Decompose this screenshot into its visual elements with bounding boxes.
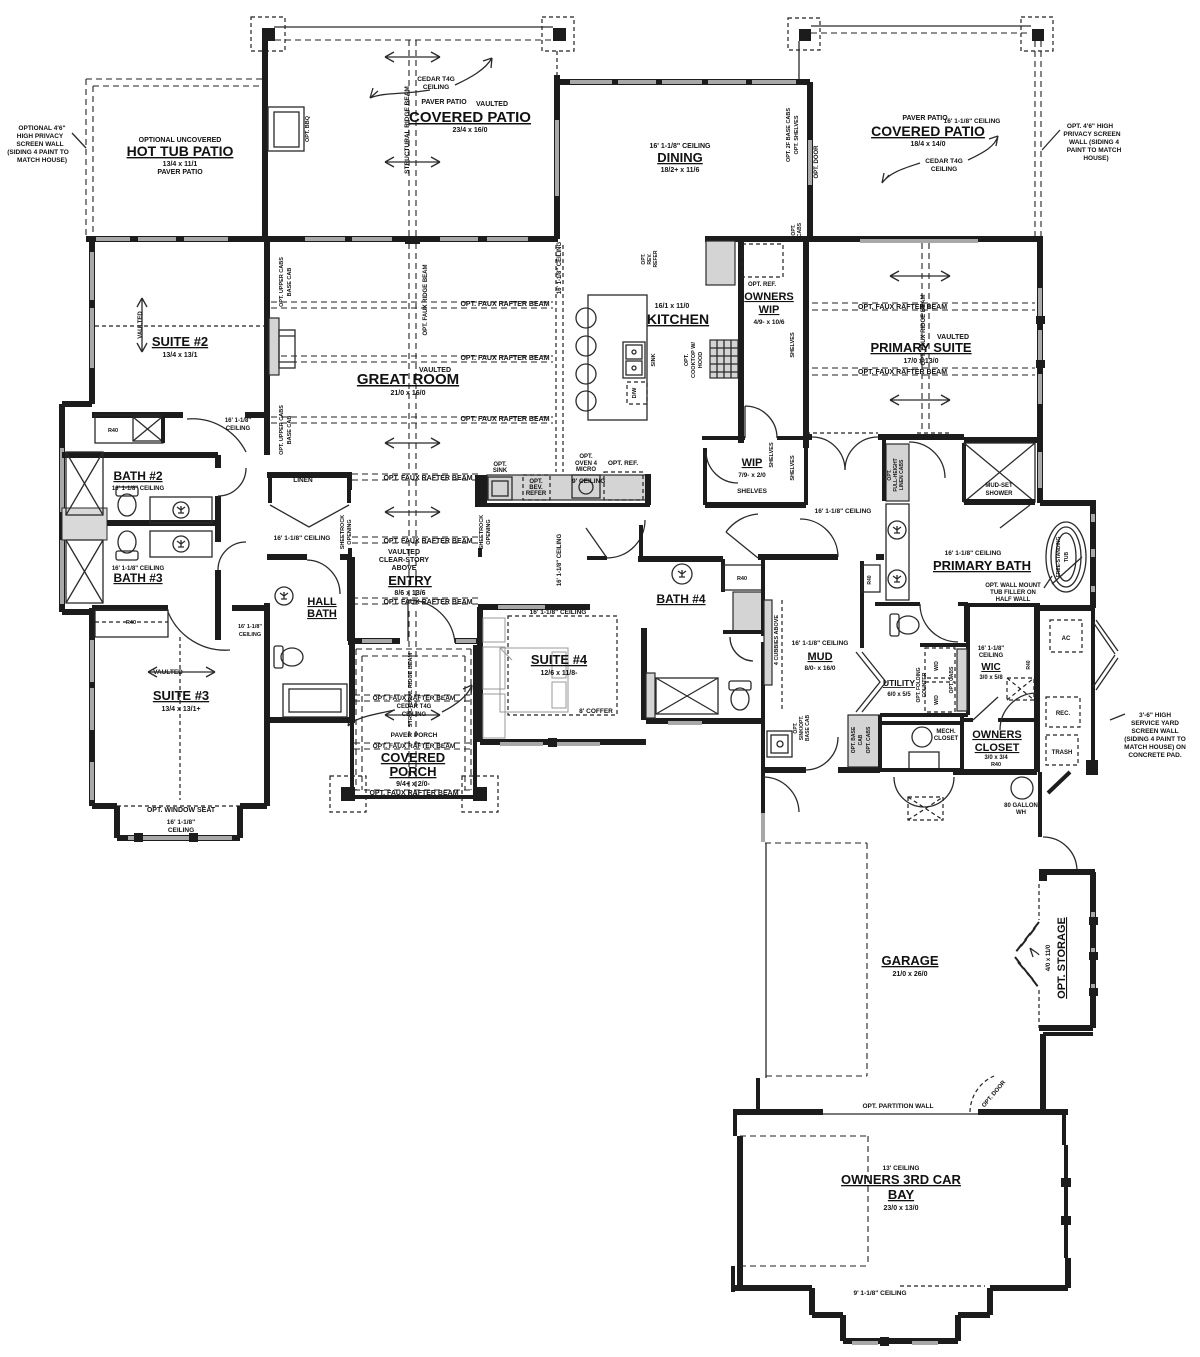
svg-text:16' 1-1/8" CEILING: 16' 1-1/8" CEILING — [792, 640, 849, 647]
svg-text:4/9- x 10/6: 4/9- x 10/6 — [753, 319, 784, 326]
svg-text:OPT. FAUX RAFTER BEAM: OPT. FAUX RAFTER BEAM — [373, 695, 456, 702]
svg-text:18/4 x 14/0: 18/4 x 14/0 — [910, 141, 945, 148]
svg-text:SERVICE YARD: SERVICE YARD — [1131, 720, 1179, 727]
svg-text:16' 1-1/8" CEILING: 16' 1-1/8" CEILING — [530, 609, 587, 616]
svg-text:16' 1-1/8" CEILING: 16' 1-1/8" CEILING — [557, 534, 563, 587]
svg-text:16' 1-1/8" CEILING: 16' 1-1/8" CEILING — [112, 486, 165, 492]
svg-text:13' CEILING: 13' CEILING — [883, 1165, 920, 1172]
svg-text:SINK: SINK — [651, 353, 657, 366]
svg-text:16' 1-1/8": 16' 1-1/8" — [238, 624, 262, 630]
svg-text:FREE-STANDING: FREE-STANDING — [1056, 537, 1062, 578]
svg-text:OPT.: OPT. — [579, 454, 593, 460]
svg-text:16' 1-1/8": 16' 1-1/8" — [225, 418, 251, 424]
svg-text:R40: R40 — [991, 762, 1001, 768]
svg-text:VAULTED: VAULTED — [138, 311, 144, 339]
svg-text:16' 1-1/8" CEILING: 16' 1-1/8" CEILING — [945, 550, 1002, 557]
svg-text:21/0 x 16/0: 21/0 x 16/0 — [390, 390, 425, 397]
svg-text:W/D: W/D — [934, 695, 940, 705]
svg-text:DINING: DINING — [657, 150, 703, 165]
svg-text:21/0 x 26/0: 21/0 x 26/0 — [892, 971, 927, 978]
svg-text:17/0 x 13/0: 17/0 x 13/0 — [903, 358, 938, 365]
svg-text:4 CUBBIES ABOVE: 4 CUBBIES ABOVE — [774, 615, 780, 666]
svg-text:PRIMARY SUITE: PRIMARY SUITE — [870, 340, 971, 355]
svg-text:3/0 x 3/4: 3/0 x 3/4 — [984, 755, 1008, 761]
svg-text:BATH #2: BATH #2 — [113, 469, 162, 483]
svg-text:REC.: REC. — [1056, 711, 1071, 717]
svg-text:3'-6" HIGH: 3'-6" HIGH — [1139, 712, 1171, 719]
svg-text:OPT. DOOR: OPT. DOOR — [814, 145, 820, 179]
svg-text:OPT. FAUX RAFTER BEAM: OPT. FAUX RAFTER BEAM — [858, 369, 947, 376]
svg-text:STRUCTURAL RIDGE BEAM: STRUCTURAL RIDGE BEAM — [404, 86, 411, 174]
svg-text:MATCH HOUSE) ON: MATCH HOUSE) ON — [1124, 744, 1186, 751]
svg-text:OPT. FAUX RAFTER BEAM: OPT. FAUX RAFTER BEAM — [460, 301, 549, 308]
svg-text:HALF WALL: HALF WALL — [996, 597, 1031, 603]
svg-text:23/0 x 13/0: 23/0 x 13/0 — [883, 1205, 918, 1212]
svg-text:HIGH PRIVACY: HIGH PRIVACY — [17, 133, 64, 140]
svg-text:OPT. 2F BASE CABS: OPT. 2F BASE CABS — [786, 108, 792, 162]
svg-text:WIC: WIC — [981, 662, 1000, 673]
svg-text:PAVER PORCH: PAVER PORCH — [391, 732, 438, 739]
svg-text:VAULTED: VAULTED — [476, 101, 508, 108]
svg-text:OPT. 4'6" HIGH: OPT. 4'6" HIGH — [1067, 123, 1113, 130]
svg-text:TUB FILLER ON: TUB FILLER ON — [990, 590, 1036, 596]
svg-text:UTILITY: UTILITY — [883, 678, 915, 688]
svg-text:13/4 x 13/1: 13/4 x 13/1 — [162, 352, 197, 359]
svg-text:16' 1-1/8": 16' 1-1/8" — [167, 819, 195, 826]
svg-text:OPT. BASE: OPT. BASE — [851, 726, 857, 753]
svg-text:MUD-SET: MUD-SET — [985, 483, 1013, 489]
svg-text:WIP: WIP — [742, 457, 763, 469]
svg-text:SHELVES: SHELVES — [737, 488, 768, 495]
svg-text:3/0 x 5/8: 3/0 x 5/8 — [979, 675, 1003, 681]
svg-text:OPT. FAUX RAFTER BEAM: OPT. FAUX RAFTER BEAM — [383, 475, 472, 482]
svg-text:OPT. UPPER CABS: OPT. UPPER CABS — [279, 405, 285, 455]
svg-text:MUD: MUD — [807, 651, 832, 663]
svg-text:D/W: D/W — [632, 387, 638, 399]
svg-text:CEILING: CEILING — [168, 827, 194, 834]
svg-text:16' 1-1/8" CEILING: 16' 1-1/8" CEILING — [815, 508, 872, 515]
svg-text:HOOD: HOOD — [698, 352, 704, 369]
svg-text:KITCHEN: KITCHEN — [647, 311, 709, 327]
svg-text:OPT. BBQ: OPT. BBQ — [305, 115, 311, 142]
svg-text:80 GALLON: 80 GALLON — [1004, 803, 1038, 809]
svg-text:R40: R40 — [737, 576, 747, 582]
svg-text:BAY: BAY — [888, 1187, 915, 1202]
svg-text:8/6 x 13/6: 8/6 x 13/6 — [394, 590, 425, 597]
svg-text:W/D: W/D — [934, 661, 940, 671]
svg-text:BASE CAB: BASE CAB — [287, 416, 293, 445]
svg-text:23/4 x 16/0: 23/4 x 16/0 — [452, 127, 487, 134]
svg-text:16' 1-1/8": 16' 1-1/8" — [978, 646, 1004, 652]
svg-text:REFER: REFER — [653, 250, 659, 267]
svg-text:SHELVES: SHELVES — [769, 442, 775, 468]
svg-text:BATH #4: BATH #4 — [656, 592, 705, 606]
svg-text:SHEETROCK: SHEETROCK — [340, 515, 346, 550]
svg-text:CEILING: CEILING — [423, 84, 449, 91]
svg-text:SCREEN WALL: SCREEN WALL — [1131, 728, 1178, 735]
svg-text:OPT. STORAGE: OPT. STORAGE — [1056, 917, 1068, 999]
svg-text:OPT. FAUX RAFTER BEAM: OPT. FAUX RAFTER BEAM — [373, 743, 456, 750]
svg-text:13/4 x 13/1+: 13/4 x 13/1+ — [161, 706, 200, 713]
svg-text:SUITE #4: SUITE #4 — [531, 652, 588, 667]
svg-text:SHELVES: SHELVES — [790, 332, 796, 358]
svg-text:COVERED PATIO: COVERED PATIO — [871, 123, 985, 139]
svg-text:SCREEN WALL: SCREEN WALL — [16, 141, 63, 148]
svg-text:WH: WH — [1016, 810, 1026, 816]
svg-text:OPENING: OPENING — [486, 519, 492, 544]
svg-text:COOKTOP W/: COOKTOP W/ — [691, 342, 697, 378]
svg-text:13/4 x 11/1: 13/4 x 11/1 — [163, 161, 198, 168]
svg-text:LINEN CABS: LINEN CABS — [899, 459, 905, 490]
svg-text:SHOWER: SHOWER — [986, 491, 1014, 497]
svg-text:GARAGE: GARAGE — [881, 953, 938, 968]
svg-text:CEILING: CEILING — [979, 653, 1004, 659]
svg-text:ABOVE: ABOVE — [392, 565, 417, 572]
svg-text:R40: R40 — [1026, 660, 1032, 669]
svg-text:CLOSET: CLOSET — [934, 736, 959, 742]
svg-text:GREAT ROOM: GREAT ROOM — [357, 371, 459, 388]
svg-text:SHEETROCK: SHEETROCK — [479, 515, 485, 550]
svg-text:CEDAR T4G: CEDAR T4G — [397, 704, 432, 710]
svg-text:PRIVACY SCREEN: PRIVACY SCREEN — [1063, 131, 1120, 138]
svg-text:PRIMARY BATH: PRIMARY BATH — [933, 558, 1031, 573]
svg-text:HALL: HALL — [307, 596, 337, 608]
svg-text:REFER: REFER — [526, 491, 547, 497]
svg-text:4/0 x 11/0: 4/0 x 11/0 — [1046, 944, 1052, 971]
svg-text:AC: AC — [1062, 636, 1071, 642]
svg-text:OPT. UPPER CABS: OPT. UPPER CABS — [279, 257, 285, 307]
svg-text:COUNTER: COUNTER — [922, 672, 928, 697]
svg-text:R40: R40 — [126, 620, 136, 626]
svg-text:CONCRETE PAD.: CONCRETE PAD. — [1128, 752, 1182, 759]
svg-text:16/1 x 11/0: 16/1 x 11/0 — [655, 303, 690, 310]
svg-text:MICRO: MICRO — [576, 467, 596, 473]
svg-text:18/2+ x 11/6: 18/2+ x 11/6 — [661, 167, 700, 174]
svg-text:OPT. REF.: OPT. REF. — [748, 282, 776, 288]
svg-text:PAVER PATIO: PAVER PATIO — [421, 99, 467, 106]
svg-text:OPT. SHELVES: OPT. SHELVES — [794, 115, 800, 154]
svg-text:BASE CAB: BASE CAB — [805, 715, 811, 742]
svg-text:OPT. WALL MOUNT: OPT. WALL MOUNT — [985, 583, 1041, 589]
svg-text:OPT. FAUX RAFTER BEAM: OPT. FAUX RAFTER BEAM — [383, 538, 472, 545]
svg-text:9/4+ x 2/0-: 9/4+ x 2/0- — [396, 781, 430, 788]
svg-text:OPT.: OPT. — [684, 353, 690, 366]
svg-text:CEILING: CEILING — [226, 426, 251, 432]
svg-text:6/0 x 5/5: 6/0 x 5/5 — [887, 692, 911, 698]
svg-text:MATCH HOUSE): MATCH HOUSE) — [17, 157, 67, 164]
svg-text:BATH: BATH — [307, 608, 337, 620]
svg-text:9' 1-1/8" CEILING: 9' 1-1/8" CEILING — [853, 1290, 906, 1297]
svg-text:BATH #3: BATH #3 — [113, 571, 162, 585]
svg-text:8' COFFER: 8' COFFER — [579, 708, 613, 715]
svg-text:(SIDING 4 PAINT TO: (SIDING 4 PAINT TO — [1124, 736, 1186, 743]
svg-text:16' 1-1/8" CEILING: 16' 1-1/8" CEILING — [274, 535, 331, 542]
svg-text:OPTIONAL 4'6": OPTIONAL 4'6" — [18, 125, 65, 132]
svg-text:(SIDING 4 PAINT TO: (SIDING 4 PAINT TO — [7, 149, 69, 156]
svg-text:CLEAR-STORY: CLEAR-STORY — [379, 557, 430, 564]
svg-text:OPT. FAUX RIDGE BEAM: OPT. FAUX RIDGE BEAM — [423, 264, 429, 335]
svg-text:OPT. FAUX RAFTER BEAM: OPT. FAUX RAFTER BEAM — [460, 355, 549, 362]
svg-text:OPT. CABS: OPT. CABS — [949, 666, 955, 693]
svg-text:16' 1-1/8" CEILING: 16' 1-1/8" CEILING — [557, 242, 563, 295]
svg-text:HOT TUB PATIO: HOT TUB PATIO — [127, 143, 234, 159]
svg-text:9' CEILING: 9' CEILING — [572, 478, 605, 485]
svg-text:PAINT TO MATCH: PAINT TO MATCH — [1067, 147, 1122, 154]
svg-text:OPT. PARTITION WALL: OPT. PARTITION WALL — [862, 1103, 933, 1110]
svg-text:TUB: TUB — [1064, 551, 1070, 562]
svg-text:R40: R40 — [867, 575, 873, 584]
svg-text:OPENING: OPENING — [347, 519, 353, 544]
svg-text:VAULTED: VAULTED — [388, 549, 420, 556]
svg-text:HOUSE): HOUSE) — [1083, 155, 1108, 162]
svg-text:PAVER PATIO: PAVER PATIO — [157, 169, 203, 176]
svg-text:TRASH: TRASH — [1052, 750, 1073, 756]
svg-text:WIP: WIP — [759, 304, 780, 316]
svg-text:OPT. WINDOW SEAT: OPT. WINDOW SEAT — [147, 807, 216, 814]
svg-text:CEDAR T4G: CEDAR T4G — [925, 158, 963, 165]
svg-text:OWNERS 3RD CAR: OWNERS 3RD CAR — [841, 1172, 962, 1187]
svg-text:SINK: SINK — [493, 468, 508, 474]
svg-text:OWNERS: OWNERS — [972, 729, 1022, 741]
svg-text:COVERED: COVERED — [381, 750, 445, 765]
svg-text:COVERED PATIO: COVERED PATIO — [409, 109, 531, 126]
svg-text:PAVER PATIO: PAVER PATIO — [902, 115, 948, 122]
svg-text:CEILING: CEILING — [402, 712, 427, 718]
svg-text:OPT. FAUX RAFTER BEAM: OPT. FAUX RAFTER BEAM — [858, 304, 947, 311]
svg-text:CAB: CAB — [858, 734, 864, 745]
svg-text:SHELVES: SHELVES — [790, 455, 796, 481]
svg-text:MECH.: MECH. — [936, 729, 956, 735]
svg-text:WALL (SIDING 4: WALL (SIDING 4 — [1069, 139, 1119, 146]
svg-text:CABS: CABS — [797, 222, 803, 237]
svg-text:CEILING: CEILING — [239, 632, 261, 638]
svg-text:CEDAR T4G: CEDAR T4G — [417, 76, 455, 83]
svg-text:12/6 x 11/8-: 12/6 x 11/8- — [541, 670, 579, 677]
svg-text:BASE CAB: BASE CAB — [287, 268, 293, 297]
svg-text:OPT. REF.: OPT. REF. — [608, 460, 639, 467]
svg-text:OPT. FAUX RAFTER BEAM: OPT. FAUX RAFTER BEAM — [460, 416, 549, 423]
svg-text:CEILING: CEILING — [931, 166, 957, 173]
svg-text:OPT. CABS: OPT. CABS — [866, 726, 872, 753]
svg-text:8/0- x 16/0: 8/0- x 16/0 — [804, 665, 835, 672]
svg-text:PORCH: PORCH — [390, 764, 437, 779]
svg-text:7/9- x 2/0: 7/9- x 2/0 — [738, 472, 766, 479]
svg-text:R40: R40 — [108, 428, 118, 434]
svg-text:CLOSET: CLOSET — [975, 742, 1020, 754]
svg-text:SUITE #3: SUITE #3 — [153, 688, 209, 703]
svg-text:ENTRY: ENTRY — [388, 573, 432, 588]
svg-text:16' 1-1/8" CEILING: 16' 1-1/8" CEILING — [649, 143, 711, 150]
svg-text:LINEN: LINEN — [293, 477, 313, 484]
svg-text:OWNERS: OWNERS — [744, 291, 794, 303]
svg-text:SUITE #2: SUITE #2 — [152, 334, 208, 349]
